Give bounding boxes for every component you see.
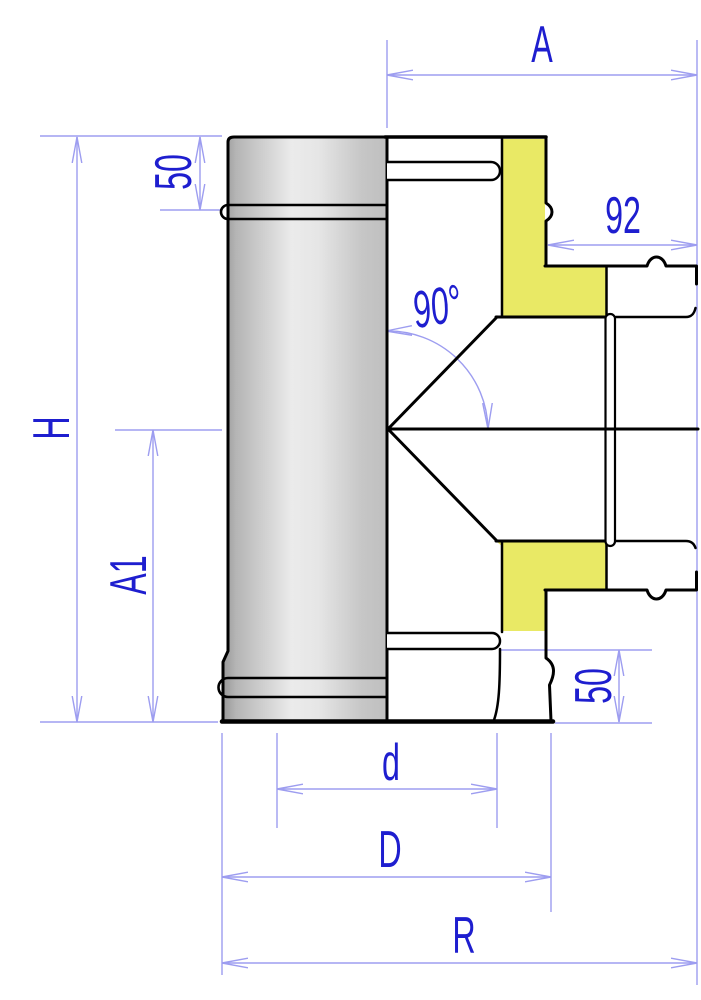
inner-pipe-bottom-socket-bead bbox=[387, 633, 500, 649]
branch-inner-bottom bbox=[616, 541, 696, 548]
outer-wall-upper-right bbox=[546, 137, 552, 266]
dim-label-D: D bbox=[378, 821, 401, 879]
dim-label-A1: A1 bbox=[100, 555, 158, 594]
drawing-canvas: A 50 92 90° H A1 50 d D R bbox=[0, 0, 701, 1000]
insulation-lower bbox=[497, 542, 606, 631]
miter-diagonal-lower bbox=[388, 429, 497, 541]
pipe-body-gray bbox=[223, 137, 387, 722]
dim-label-top-offset-50: 50 bbox=[145, 154, 203, 190]
inner-wall-bottom-tail bbox=[494, 649, 500, 720]
insulation-upper bbox=[503, 139, 606, 316]
dim-label-H: H bbox=[23, 416, 81, 439]
dim-label-R: R bbox=[452, 907, 475, 965]
branch-inner-top bbox=[616, 308, 696, 317]
dim-label-92: 92 bbox=[605, 187, 641, 245]
tee-90-technical-drawing: A 50 92 90° H A1 50 d D R bbox=[0, 0, 701, 1000]
dim-label-bottom-offset-50: 50 bbox=[565, 668, 623, 704]
dim-label-d: d bbox=[382, 734, 400, 792]
dim-label-A: A bbox=[531, 16, 553, 74]
outer-wall-lower-right bbox=[546, 590, 554, 721]
dim-label-angle-90: 90° bbox=[408, 275, 466, 340]
inner-pipe-top-socket-bead bbox=[387, 162, 500, 180]
outer-shell-view bbox=[219, 137, 388, 722]
